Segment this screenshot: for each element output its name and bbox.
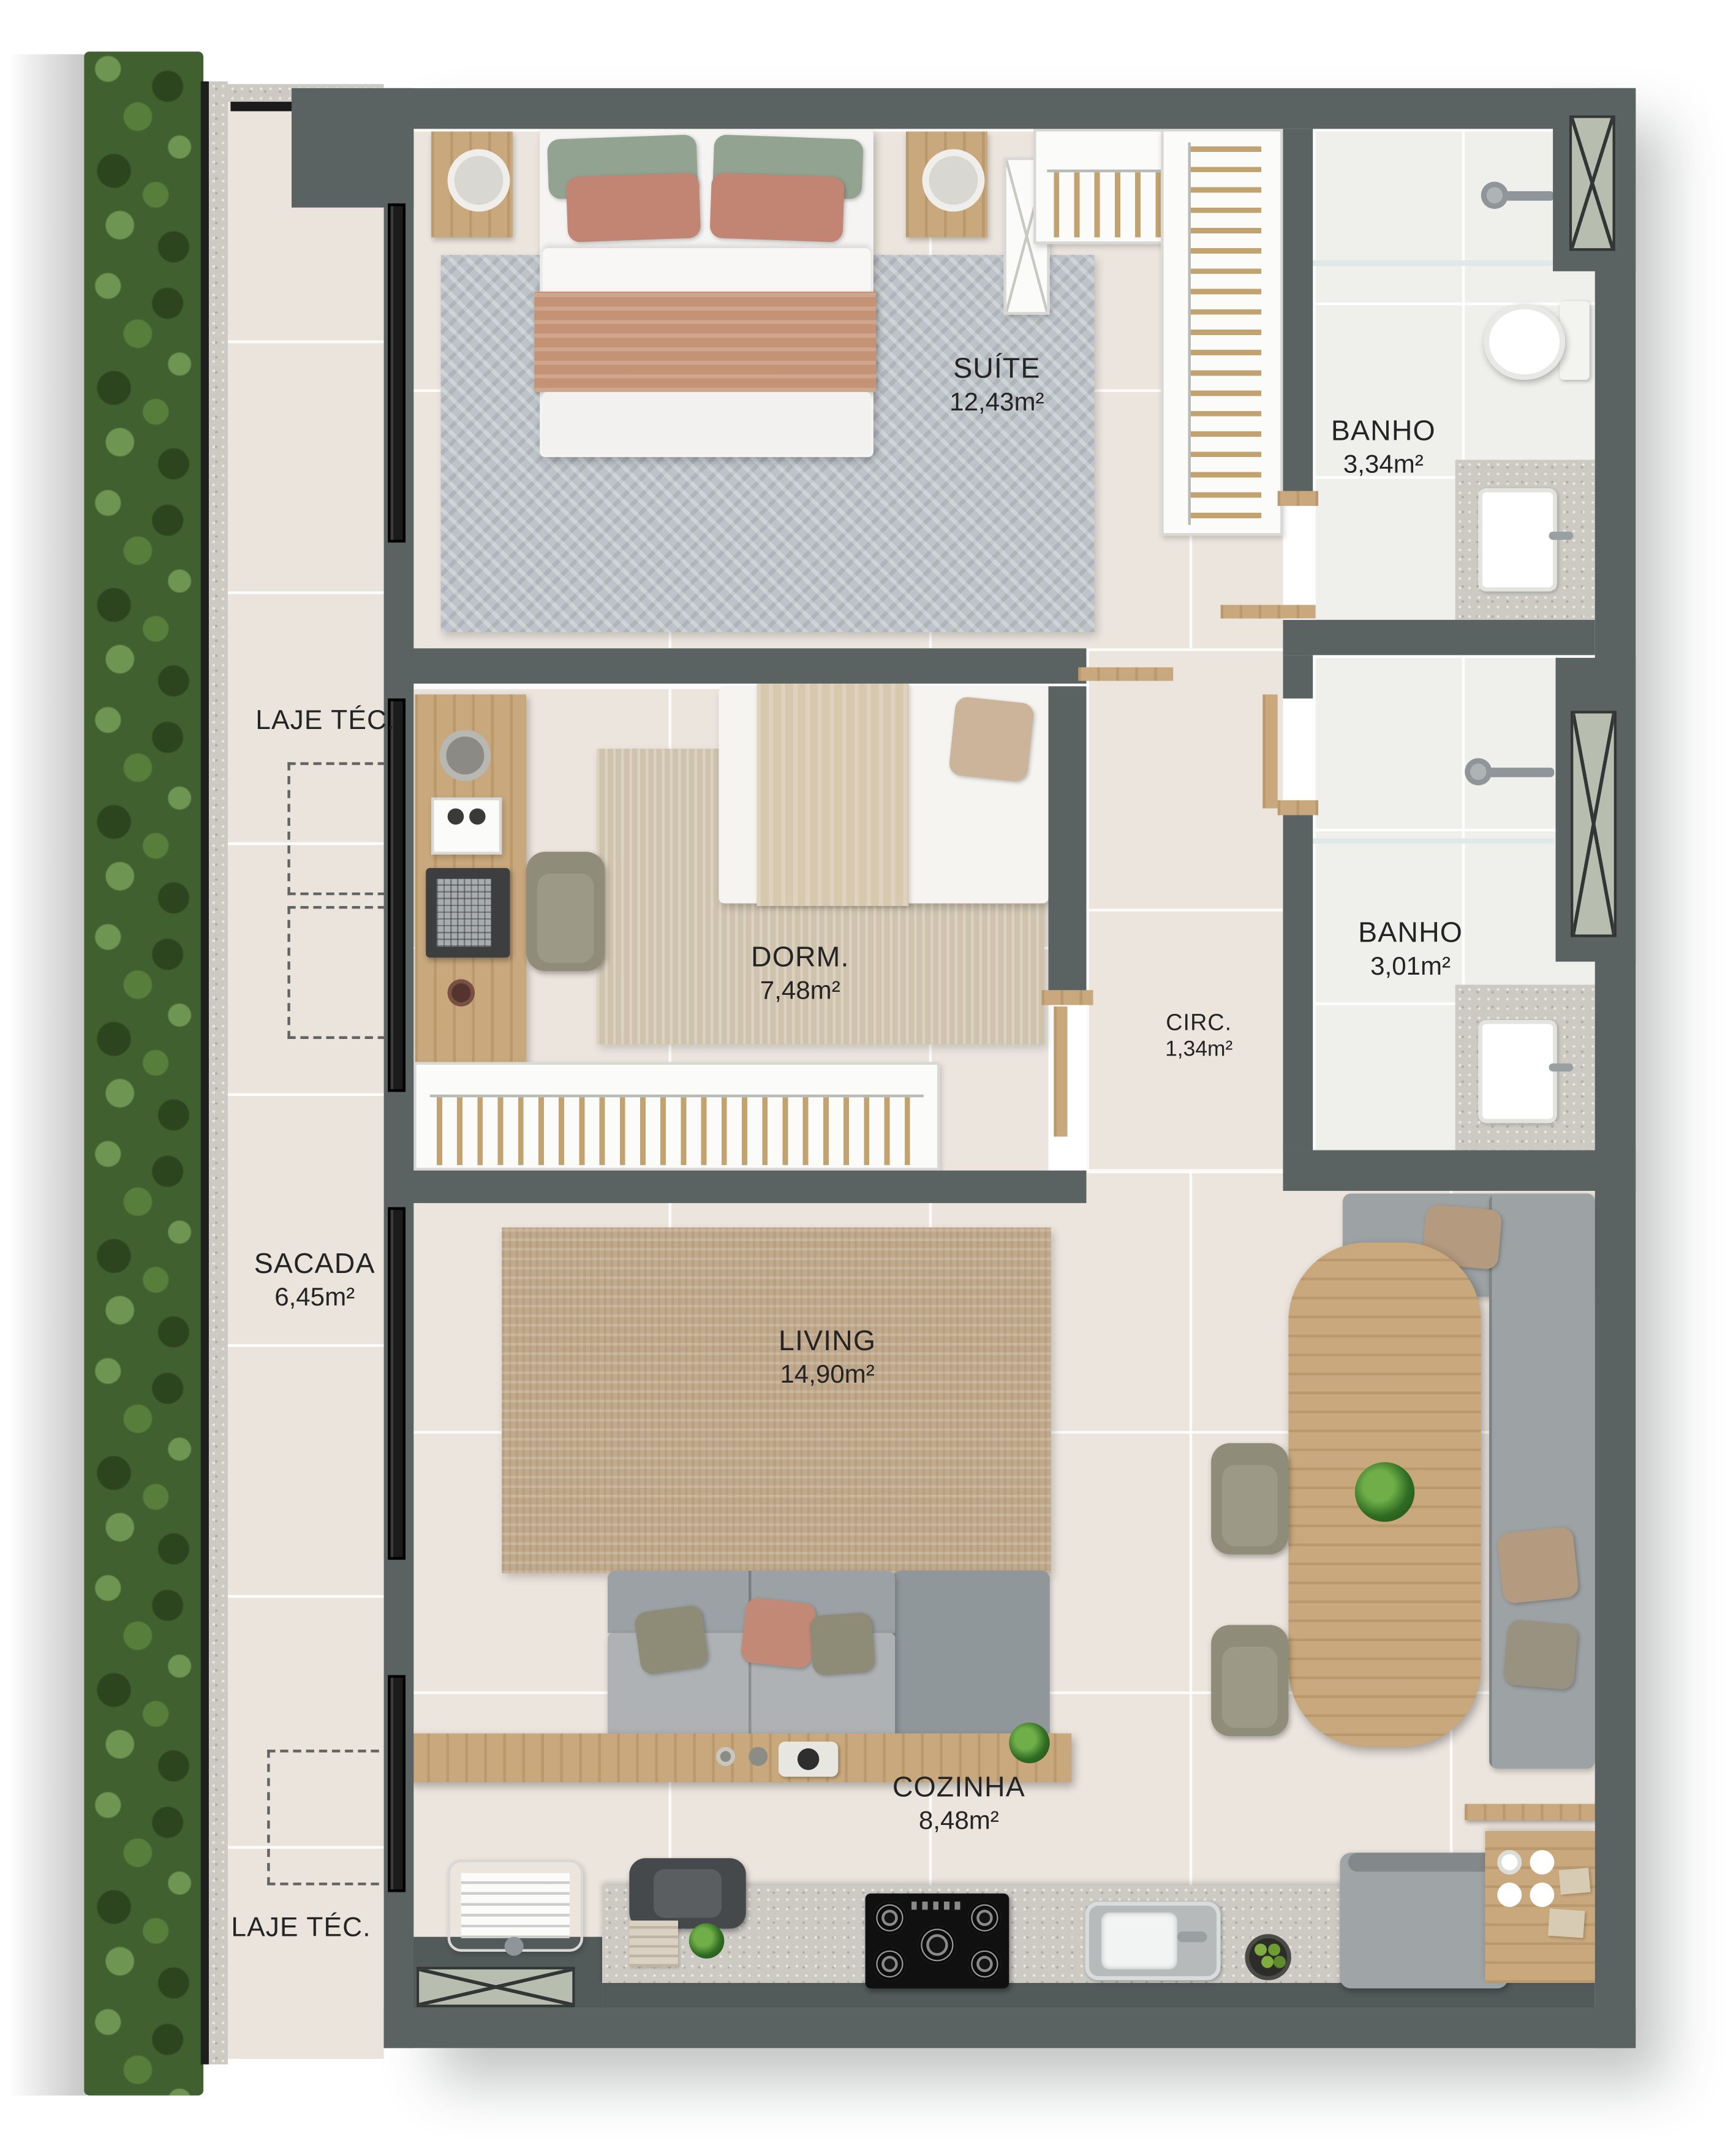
sofa-chaise	[893, 1571, 1050, 1742]
door-jamb	[1278, 800, 1318, 815]
room-name: DORM.	[751, 940, 850, 976]
serving-tray	[1548, 1908, 1585, 1938]
room-area: 3,01m²	[1358, 951, 1463, 983]
room-area: 7,48m²	[751, 976, 850, 1007]
pillow-salmon	[740, 1597, 817, 1669]
fan-icon	[923, 149, 985, 212]
wall-banho-suite-left	[1283, 129, 1313, 500]
wall-right	[1595, 88, 1636, 2048]
room-name: BANHO	[1358, 916, 1463, 952]
faucet-icon	[1549, 532, 1573, 540]
faucet-icon	[1177, 1932, 1207, 1943]
plant-icon	[1009, 1723, 1049, 1763]
dorm-wardrobe	[413, 1062, 940, 1171]
wall-dorm-bottom	[408, 1171, 1086, 1203]
suite-closet-vertical	[1161, 129, 1283, 535]
fan-icon	[448, 149, 510, 212]
circ-floor	[1086, 648, 1283, 1203]
laptop-keyboard	[437, 879, 491, 947]
shower-glass-partition	[1313, 260, 1554, 266]
air-fryer-lid	[654, 1869, 722, 1918]
shower-head-icon	[1481, 182, 1508, 209]
toilet	[1484, 304, 1565, 380]
plant-icon	[689, 1924, 725, 1959]
room-name: CIRC.	[1165, 1008, 1232, 1037]
burner	[874, 1947, 906, 1980]
room-name: SUÍTE	[949, 352, 1044, 388]
room-name: BANHO	[1331, 414, 1436, 450]
pillow-salmon	[709, 173, 845, 243]
door-jamb	[1278, 491, 1318, 505]
sliding-door-dorm	[388, 698, 406, 1092]
room-label-banho-social: BANHO 3,01m²	[1358, 916, 1463, 983]
room-label-circ: CIRC. 1,34m²	[1165, 1008, 1232, 1064]
suite-double-bed	[540, 129, 874, 457]
dining-chair	[1211, 1625, 1288, 1736]
floor-plan: SUÍTE 12,43m² BANHO 3,34m² DORM. 7,48m² …	[0, 0, 1736, 2148]
planter-edge	[201, 81, 209, 2064]
room-area: 6,45m²	[254, 1282, 376, 1313]
laptop	[426, 868, 510, 957]
room-label-suite: SUÍTE 12,43m²	[949, 352, 1044, 418]
door-banho-social	[1262, 695, 1277, 809]
kitchen-towel	[629, 1921, 678, 1966]
hedge-shadow	[8, 55, 86, 2096]
wall-top	[384, 88, 1636, 129]
pillow-tan	[948, 696, 1035, 782]
room-name: LIVING	[779, 1324, 876, 1360]
vent-hatch	[417, 1966, 575, 2007]
laje-tec-bottom-zone	[267, 1750, 392, 1885]
room-label-sacada: SACADA 6,45m²	[254, 1247, 376, 1313]
wall-dorm-right	[1048, 686, 1086, 998]
wall-banho-social-left-b	[1283, 811, 1313, 1150]
cooktop	[866, 1894, 1010, 1988]
door-dorm	[1054, 1007, 1067, 1137]
tank-faucet-icon	[505, 1937, 524, 1956]
wall-banho-social-bottom	[1283, 1150, 1636, 1191]
bathroom-sink	[1478, 488, 1557, 591]
fruit-limes	[1255, 1944, 1267, 1956]
wall-suite-bottom	[408, 648, 1086, 684]
room-area: 14,90m²	[779, 1360, 876, 1391]
living-rug	[502, 1228, 1051, 1574]
sliding-door-living	[388, 1207, 406, 1560]
pillow-salmon	[566, 173, 701, 243]
wall-bottom	[384, 2007, 1636, 2048]
door-jamb	[1041, 990, 1093, 1005]
shower-glass-partition	[1313, 838, 1554, 844]
dorm-single-bed	[719, 686, 1048, 903]
shaft-duct	[1569, 115, 1615, 251]
shaft-duct	[1571, 711, 1617, 937]
duvet-foot	[543, 392, 871, 455]
blanket-beige	[757, 684, 908, 906]
kitchen-wall-shelf	[1465, 1804, 1595, 1821]
decor-vase	[798, 1748, 819, 1770]
burner	[968, 1902, 1001, 1934]
desk-tray	[439, 730, 491, 781]
throw-blanket	[534, 292, 876, 392]
refrigerator-handle	[1348, 1853, 1500, 1871]
bathroom-sink	[1478, 1020, 1557, 1123]
serving-tray	[1559, 1868, 1591, 1895]
kitchen-window	[388, 1675, 406, 1892]
pillow-gray	[1503, 1619, 1579, 1690]
room-label-living: LIVING 14,90m²	[779, 1324, 876, 1391]
laje-tec-top-zone-1	[287, 762, 399, 895]
fruit-bowl	[1245, 1934, 1291, 1980]
burner	[968, 1947, 1001, 1980]
desk-perfume-box	[431, 798, 502, 855]
dining-chair	[1211, 1443, 1288, 1555]
plant-icon	[1355, 1462, 1414, 1522]
desk-chair	[526, 852, 605, 971]
wall-banho-suite-bottom	[1283, 620, 1595, 655]
room-area: 12,43m²	[949, 387, 1044, 418]
pillow-olive	[633, 1604, 709, 1675]
annotation-laje-tec-bottom: LAJE TÉC.	[231, 1913, 371, 1944]
balcony-parapet	[209, 81, 228, 2064]
pillow-olive	[809, 1612, 875, 1675]
vertical-garden	[84, 51, 203, 2096]
hanger-rail	[1188, 142, 1262, 524]
door-suite	[1078, 667, 1173, 681]
sliding-door-suite	[388, 203, 406, 543]
sink-basin	[1101, 1913, 1177, 1970]
pillow-tan	[1496, 1526, 1579, 1604]
plates-stack	[1497, 1850, 1522, 1875]
room-name: SACADA	[254, 1247, 376, 1283]
candle-holders	[716, 1747, 735, 1766]
annotation-laje-tec-top: LAJE TÉC.	[255, 706, 395, 737]
wall-banho-social-left-a	[1283, 655, 1313, 698]
perfume-bottles	[448, 809, 464, 825]
room-label-cozinha: COZINHA 8,48m²	[893, 1770, 1025, 1837]
room-area: 3,34m²	[1331, 450, 1436, 481]
faucet-icon	[1549, 1063, 1573, 1071]
door-banho-suite	[1221, 605, 1316, 618]
shower-head-icon	[1465, 758, 1492, 785]
desk-pen-cup	[448, 980, 475, 1007]
room-label-dorm: DORM. 7,48m²	[751, 940, 850, 1007]
room-label-banho-suite: BANHO 3,34m²	[1331, 414, 1436, 480]
refrigerator	[1340, 1853, 1508, 1988]
cooktop-knobs	[911, 1902, 963, 1909]
room-area: 8,48m²	[893, 1806, 1025, 1837]
hanger-rail	[430, 1095, 924, 1165]
burner	[918, 1926, 956, 1964]
room-name: COZINHA	[893, 1770, 1025, 1806]
burner	[874, 1902, 906, 1934]
room-area: 1,34m²	[1165, 1037, 1232, 1064]
laje-tec-top-zone-2	[287, 906, 399, 1039]
